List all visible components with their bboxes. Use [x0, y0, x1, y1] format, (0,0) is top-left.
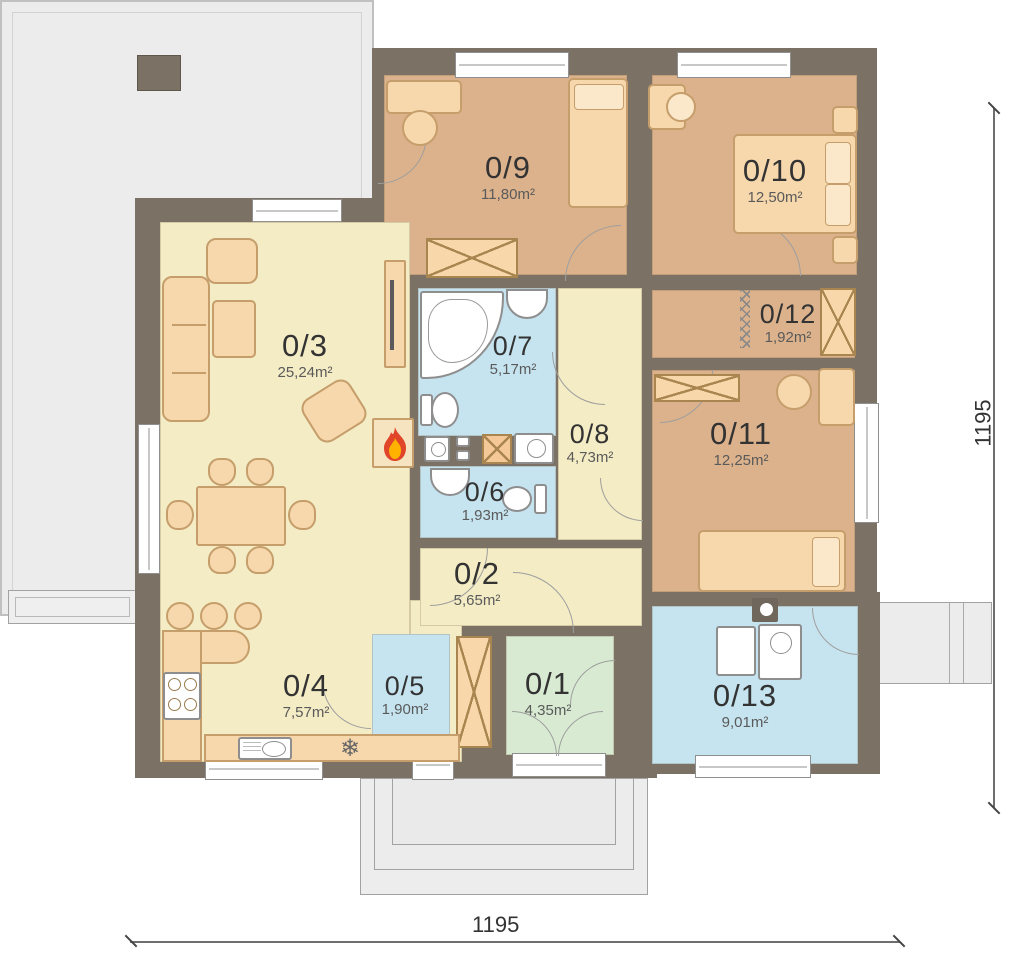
washer-door — [527, 439, 546, 458]
room-number: 0/12 — [760, 300, 817, 328]
window-bedroom-011-right — [854, 403, 879, 523]
fridge-snowflake-icon: ❄ — [330, 737, 370, 763]
wc-toilet-tank — [534, 484, 547, 514]
dimension-line-right — [993, 108, 995, 808]
room-number: 0/2 — [454, 558, 501, 591]
room-number: 0/4 — [283, 670, 330, 703]
shelf-box — [456, 436, 470, 447]
stove-burner — [168, 678, 181, 691]
stove-burner — [184, 698, 197, 711]
cabinet-dial — [431, 442, 446, 457]
toilet-bowl — [431, 392, 459, 428]
room-number: 0/10 — [743, 155, 807, 188]
bar-stool — [234, 602, 262, 630]
room-label-03: 0/3 25,24m² — [277, 330, 332, 381]
kitchen-sink — [238, 737, 292, 760]
sofa-cushion-line — [172, 372, 206, 374]
dimension-value-bottom: 1195 — [472, 912, 519, 938]
bar-stool — [166, 602, 194, 630]
washer-dryer — [514, 433, 554, 464]
window-bedroom-09 — [455, 52, 569, 78]
tv-cabinet — [384, 260, 406, 368]
side-steps — [878, 602, 992, 684]
hall-wardrobe — [456, 636, 492, 748]
desk — [818, 368, 855, 426]
room-label-010: 0/10 12,50m² — [743, 155, 807, 206]
room-area: 5,17m² — [490, 361, 537, 378]
sofa-cushion-line — [172, 324, 206, 326]
room-number: 0/1 — [525, 668, 572, 701]
room-area: 11,80m² — [481, 186, 535, 203]
installation-shaft — [482, 434, 512, 464]
room-number: 0/7 — [490, 332, 537, 360]
washing-machine — [716, 626, 756, 676]
dining-table — [196, 486, 286, 546]
room-label-09: 0/9 11,80m² — [481, 152, 535, 203]
window-living-left — [138, 424, 160, 574]
boiler-dial — [760, 603, 773, 616]
boiler — [752, 598, 778, 622]
room-number: 0/3 — [277, 330, 332, 363]
room-label-01: 0/1 4,35m² — [525, 668, 572, 719]
dimension-line-bottom — [130, 941, 900, 943]
sofa — [162, 276, 210, 422]
stove — [163, 672, 201, 720]
wardrobe — [654, 374, 740, 402]
room-number: 0/5 — [382, 672, 429, 700]
terrace-step-line — [15, 597, 130, 617]
utility-sink-basin — [770, 632, 792, 654]
dining-chair — [246, 458, 274, 486]
room-number: 0/6 — [462, 478, 509, 506]
window-bedroom-010 — [677, 52, 791, 78]
dining-chair — [208, 546, 236, 574]
dining-chair — [246, 546, 274, 574]
bed-pillow — [574, 84, 624, 110]
dining-chair — [208, 458, 236, 486]
room-area: 12,50m² — [743, 189, 807, 206]
room-area: 1,93m² — [462, 507, 509, 524]
room-label-012: 0/12 1,92m² — [760, 300, 817, 346]
bed-single — [698, 530, 846, 592]
desk-chair — [776, 374, 812, 410]
room-number: 0/9 — [481, 152, 535, 185]
wardrobe — [820, 288, 856, 356]
floor-plan-canvas: ❄ 0/9 11,80m² 0/10 12,50m² 0/12 1,92m² 0… — [0, 0, 1013, 955]
room-label-02: 0/2 5,65m² — [454, 558, 501, 609]
room-area: 4,73m² — [567, 449, 614, 466]
room-area: 1,92m² — [760, 329, 817, 346]
room-label-04: 0/4 7,57m² — [283, 670, 330, 721]
room-area: 7,57m² — [283, 704, 330, 721]
coffee-table — [212, 300, 256, 358]
dimension-value-right: 1195 — [971, 399, 997, 446]
room-number: 0/11 — [710, 418, 772, 451]
nightstand — [832, 106, 858, 134]
sink-drainer — [243, 742, 261, 754]
desk-chair — [402, 110, 438, 146]
room-number: 0/8 — [567, 420, 614, 448]
window-living-top — [252, 199, 342, 222]
dining-chair — [288, 500, 316, 530]
room-label-05: 0/5 1,90m² — [382, 672, 429, 718]
room-label-011: 0/11 12,25m² — [710, 418, 772, 469]
utility-sink-unit — [758, 624, 802, 680]
tv-screen — [390, 280, 394, 350]
armchair — [206, 238, 258, 284]
sink-basin — [262, 741, 286, 757]
window-utility-013 — [695, 755, 811, 778]
room-area: 5,65m² — [454, 592, 501, 609]
bathtub-basin — [428, 299, 488, 363]
bar-stool — [200, 602, 228, 630]
stove-burner — [184, 678, 197, 691]
room-label-07: 0/7 5,17m² — [490, 332, 537, 378]
room-area: 4,35m² — [525, 702, 572, 719]
terrace-step — [8, 590, 137, 624]
stove-burner — [168, 698, 181, 711]
shelf-box — [456, 450, 470, 461]
fireplace-flame-icon — [382, 426, 408, 462]
dining-chair — [166, 500, 194, 530]
bath-cabinet — [424, 436, 450, 462]
room-label-08: 0/8 4,73m² — [567, 420, 614, 466]
fireplace — [372, 418, 414, 468]
desk — [386, 80, 462, 114]
bed-single — [568, 78, 628, 208]
terrace-pillar — [137, 55, 181, 91]
entry-door-opening — [512, 753, 606, 777]
room-label-06: 0/6 1,93m² — [462, 478, 509, 524]
door-012-folding — [740, 290, 750, 348]
bed-pillow — [825, 142, 851, 184]
side-step-line — [963, 603, 964, 683]
side-step-line — [949, 603, 950, 683]
bed-pillow — [825, 184, 851, 226]
room-area: 25,24m² — [277, 364, 332, 381]
room-area: 1,90m² — [382, 701, 429, 718]
room-area: 12,25m² — [710, 452, 772, 469]
room-label-013: 0/13 9,01m² — [713, 680, 777, 731]
porch-step-inner — [392, 778, 616, 845]
room-area: 9,01m² — [713, 714, 777, 731]
room-number: 0/13 — [713, 680, 777, 713]
wardrobe — [426, 238, 518, 278]
nightstand — [832, 236, 858, 264]
dresser-mirror — [666, 92, 696, 122]
bed-pillow — [812, 537, 840, 587]
